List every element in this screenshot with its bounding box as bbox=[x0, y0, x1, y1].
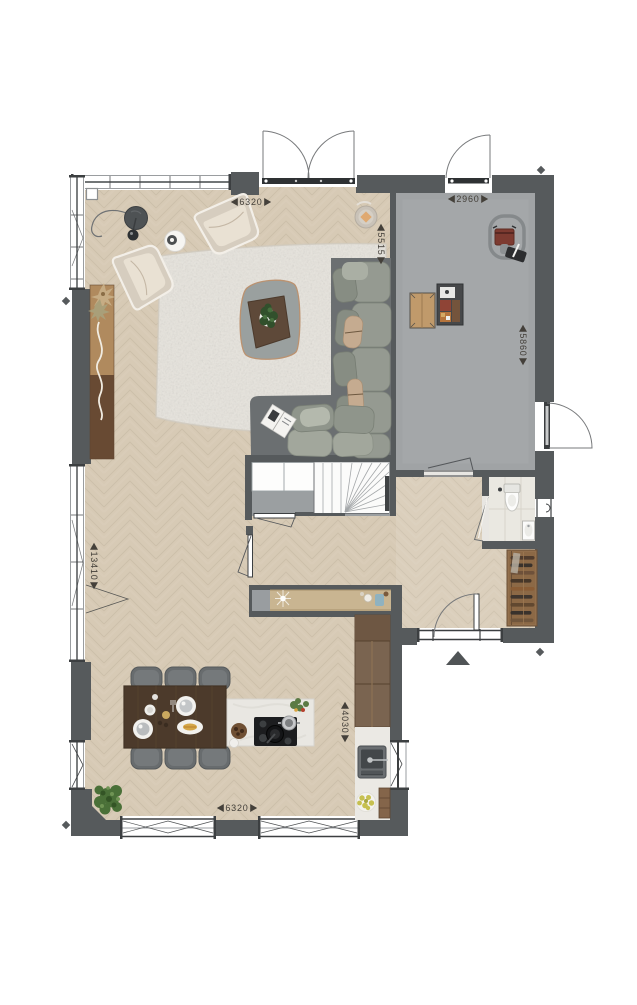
svg-text:6320: 6320 bbox=[225, 803, 248, 813]
svg-text:6320: 6320 bbox=[239, 197, 262, 207]
svg-text:13410: 13410 bbox=[89, 551, 99, 580]
svg-text:4030: 4030 bbox=[340, 710, 350, 733]
svg-text:5860: 5860 bbox=[518, 333, 528, 356]
svg-text:5515: 5515 bbox=[376, 232, 386, 255]
svg-text:2960: 2960 bbox=[456, 194, 479, 204]
